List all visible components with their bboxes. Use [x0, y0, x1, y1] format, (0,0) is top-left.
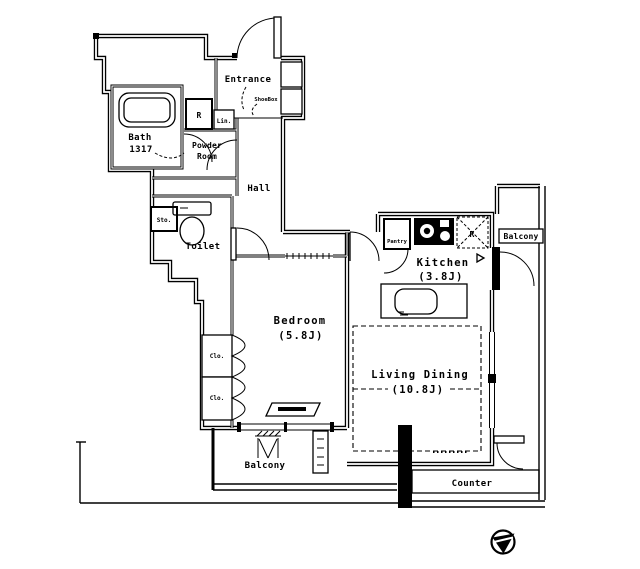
kitchen-balcony-door-swing: [477, 247, 534, 290]
toilet-label: Toilet: [186, 241, 221, 252]
window-mullion: [488, 374, 496, 383]
floorplan-drawing: Entrance ShoeBox Bath 1317 R Lin. Powder…: [0, 0, 640, 569]
living-dining-size-label: (10.8J): [392, 384, 445, 396]
entrance-leader: [242, 87, 246, 110]
slop-sink-icon: [255, 431, 281, 458]
living-dining-label: Living Dining: [371, 369, 469, 381]
kitchen-label: Kitchen: [417, 257, 470, 269]
pantry-label: Pantry: [387, 239, 408, 245]
closet-upper-label: Clo.: [210, 353, 224, 360]
powder-room-label-2: Room: [197, 152, 217, 161]
shoebox-upper-box: [281, 62, 302, 87]
stove-icon: [414, 218, 454, 245]
bedroom-size-label: (5.8J): [278, 330, 323, 342]
entrance-door-swing: [237, 17, 281, 58]
bathtub-icon: [119, 93, 175, 127]
washing-machine-label: R: [196, 111, 201, 120]
pantry-door-swing: [384, 249, 408, 273]
balcony-bottom-label: Balcony: [245, 461, 286, 471]
bath-leader: [155, 153, 184, 158]
closet-lower-label: Clo.: [210, 395, 224, 402]
bedroom-sliding-door: [285, 253, 333, 259]
sink-icon: [381, 284, 467, 318]
toilet-icon: [173, 202, 211, 245]
living-window-lower: [490, 382, 495, 428]
pipe-space-box: [313, 431, 328, 473]
entrance-label: Entrance: [225, 75, 272, 85]
shoebox-leader: [252, 104, 257, 116]
counter-label: Counter: [452, 479, 493, 489]
storage-label: Sto.: [157, 217, 171, 224]
bath-label: Bath: [128, 133, 151, 143]
hall-label: Hall: [247, 184, 270, 194]
living-balcony-door-swing: [494, 436, 524, 469]
bedroom-label: Bedroom: [274, 315, 327, 327]
floorplan-canvas: Entrance ShoeBox Bath 1317 R Lin. Powder…: [0, 0, 640, 569]
bath-size-label: 1317: [129, 145, 152, 155]
compass-icon: [492, 531, 515, 554]
kitchen-size-label: (3.8J): [418, 271, 463, 283]
refrigerator-label: R: [469, 230, 474, 239]
door-marker-icon: [477, 254, 484, 262]
tv-board-icon: [266, 403, 320, 416]
linen-label: Lin.: [217, 118, 231, 125]
powder-room-label-1: Powder: [192, 141, 222, 150]
living-window-upper: [490, 332, 495, 376]
balcony-right-label: Balcony: [503, 232, 538, 241]
windows: [237, 332, 496, 432]
shoebox-lower-box: [281, 89, 302, 114]
balcony-divider-wall: [398, 425, 412, 508]
kitchen-door-swing: [350, 232, 379, 261]
shoebox-label: ShoeBox: [254, 97, 278, 103]
balcony-railings: [76, 186, 545, 508]
closet-bifold-doors: [232, 335, 245, 420]
